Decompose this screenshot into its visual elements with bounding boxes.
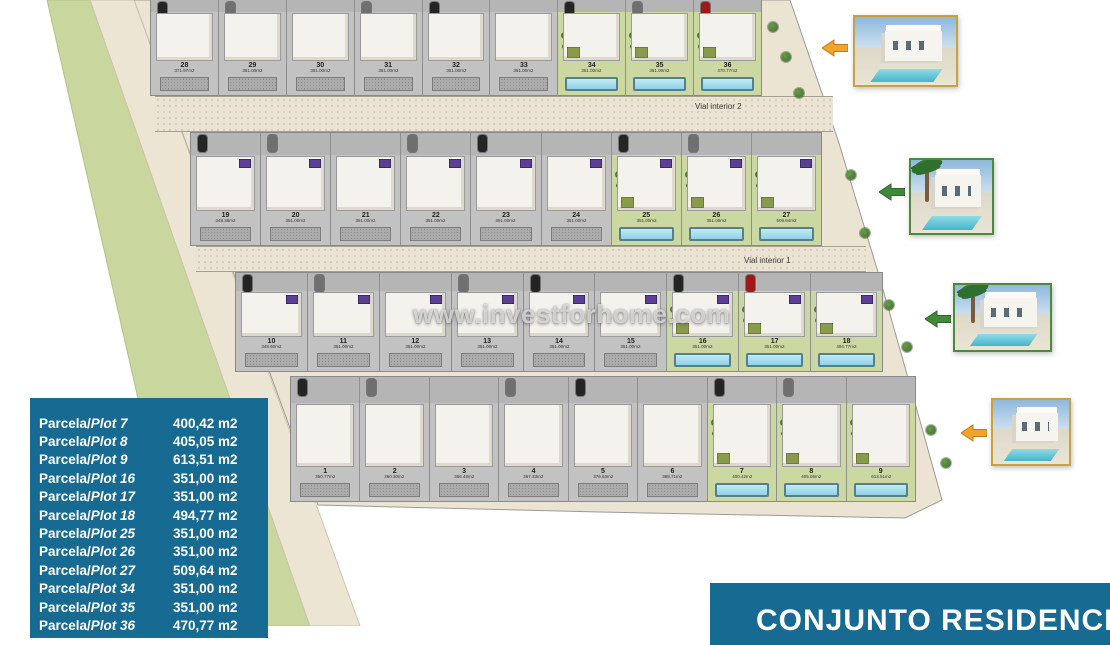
garden-patch — [635, 47, 648, 58]
plot-label: 7400.42m2 — [708, 468, 776, 482]
plot-area-label: 613.51m2 — [850, 475, 912, 480]
house-footprint — [296, 404, 354, 467]
plot-table-label: Parcela/Plot 27 — [39, 563, 173, 578]
driveway — [626, 0, 693, 12]
plot-label: 19348.38m2 — [191, 212, 260, 226]
photo-pool — [871, 69, 943, 82]
swimming-pool — [674, 353, 731, 367]
plot-7: 7400.42m2 — [708, 377, 777, 501]
plot-label: 26351.00m2 — [682, 212, 751, 226]
house-footprint — [241, 292, 302, 337]
terrace — [480, 227, 531, 241]
development-banner: CONJUNTO RESIDENCIAL — [710, 583, 1110, 645]
solar-panel-icon — [449, 159, 461, 168]
plot-4: 4367.33m2 — [499, 377, 568, 501]
solar-panel-icon — [239, 159, 251, 168]
plot-table-area: 405,05 m2 — [173, 434, 238, 449]
solar-panel-icon — [861, 295, 873, 304]
house-footprint — [744, 292, 805, 337]
garden-patch — [691, 197, 704, 208]
house-footprint — [547, 156, 606, 211]
plot-area-label: 405.05m2 — [780, 475, 842, 480]
house-footprint — [224, 13, 281, 61]
plot-area-label: 351.00m2 — [335, 219, 397, 224]
photo-pool — [1004, 449, 1060, 461]
plot-area-label: 351.00m2 — [527, 345, 591, 350]
swimming-pool — [746, 353, 803, 367]
driveway — [667, 273, 738, 291]
plot-table-area: 613,51 m2 — [173, 452, 238, 467]
driveway — [708, 377, 776, 403]
driveway — [401, 133, 470, 155]
plot-30: 30351.00m2 — [287, 0, 355, 95]
plot-table-label: Parcela/Plot 25 — [39, 526, 173, 541]
car-icon — [198, 135, 207, 152]
plot-26: 26351.00m2 — [682, 133, 752, 245]
garden-patch — [567, 47, 580, 58]
car-icon — [715, 379, 724, 396]
arrow-left-icon — [925, 310, 951, 328]
swimming-pool — [715, 483, 769, 497]
driveway — [752, 133, 821, 155]
terrace — [296, 77, 345, 91]
house-footprint — [156, 13, 213, 61]
driveway — [595, 273, 666, 291]
plot-label: 35351.00m2 — [626, 62, 693, 76]
car-icon — [459, 275, 468, 292]
plot-area-label: 351.00m2 — [311, 345, 375, 350]
house-footprint — [476, 156, 535, 211]
driveway — [452, 273, 523, 291]
plot-area-label: 376.63m2 — [572, 475, 634, 480]
car-icon — [674, 275, 683, 292]
plot-size-table: Parcela/Plot 7400,42 m2Parcela/Plot 8405… — [30, 398, 268, 638]
plot-29: 29351.00m2 — [219, 0, 287, 95]
plot-table-area: 351,00 m2 — [173, 600, 238, 615]
garden-patch — [748, 323, 761, 334]
plot-area-label: 388.71m2 — [642, 475, 704, 480]
tree-icon — [794, 88, 804, 98]
arrow-left-icon — [879, 183, 905, 201]
plot-table-label: Parcela/Plot 8 — [39, 434, 173, 449]
plot-23: 23351.00m2 — [471, 133, 541, 245]
car-icon — [531, 275, 540, 292]
terrace — [533, 353, 586, 367]
plot-area-label: 356.48m2 — [433, 475, 495, 480]
palm-tree-icon — [925, 170, 929, 202]
tree-icon — [846, 170, 856, 180]
plot-21: 21351.00m2 — [331, 133, 401, 245]
driveway — [308, 273, 379, 291]
plot-area-label: 351.00m2 — [265, 219, 327, 224]
photo-villa — [885, 31, 942, 61]
driveway — [558, 0, 625, 12]
driveway — [542, 133, 611, 155]
house-footprint — [365, 404, 423, 467]
car-icon — [298, 379, 307, 396]
plot-table-area: 351,00 m2 — [173, 489, 238, 504]
house-footprint — [313, 292, 374, 337]
plot-label: 5376.63m2 — [569, 468, 637, 482]
plot-row-28-36: 28371.97m229351.00m230351.00m231351.00m2… — [150, 0, 762, 96]
villa-photo-4 — [991, 398, 1071, 466]
house-footprint — [406, 156, 465, 211]
plot-area-label: 350.77m2 — [294, 475, 356, 480]
tree-icon — [926, 425, 936, 435]
house-footprint — [699, 13, 756, 61]
plot-table-label: Parcela/Plot 36 — [39, 618, 173, 633]
house-footprint — [495, 13, 552, 61]
plot-table-row: Parcela/Plot 7400,42 m2 — [39, 414, 268, 432]
villa-photo-1 — [853, 15, 958, 87]
plot-table-row: Parcela/Plot 25351,00 m2 — [39, 524, 268, 542]
terrace — [461, 353, 514, 367]
solar-panel-icon — [520, 159, 532, 168]
plot-area-label: 351.00m2 — [358, 69, 418, 74]
plot-label: 32351.00m2 — [423, 62, 490, 76]
house-footprint — [852, 404, 910, 467]
photo-villa — [984, 298, 1037, 327]
plot-area-label: 494.77m2 — [815, 345, 879, 350]
plot-label: 4367.33m2 — [499, 468, 567, 482]
house-footprint — [360, 13, 417, 61]
plot-table-area: 351,00 m2 — [173, 471, 238, 486]
plot-20: 20351.00m2 — [261, 133, 331, 245]
house-footprint — [687, 156, 746, 211]
road-vial-interior-2: Vial interior 2 — [155, 96, 833, 132]
terrace — [317, 353, 370, 367]
plot-area-label: 351.00m2 — [671, 345, 735, 350]
house-footprint — [428, 13, 485, 61]
plot-table-label: Parcela/Plot 17 — [39, 489, 173, 504]
car-icon — [619, 135, 628, 152]
driveway — [811, 273, 882, 291]
plot-area-label: 351.00m2 — [426, 69, 486, 74]
terrace — [389, 353, 442, 367]
plot-area-label: 509.64m2 — [755, 219, 817, 224]
plot-area-label: 348.60m2 — [240, 345, 304, 350]
plot-label: 23351.00m2 — [471, 212, 540, 226]
driveway — [360, 377, 428, 403]
villa-photo-2 — [909, 158, 994, 235]
house-footprint — [643, 404, 701, 467]
house-footprint — [435, 404, 493, 467]
plot-label: 1350.77m2 — [291, 468, 359, 482]
plot-label: 21351.00m2 — [331, 212, 400, 226]
plot-label: 8405.05m2 — [777, 468, 845, 482]
terrace — [228, 77, 277, 91]
driveway — [219, 0, 286, 12]
driveway — [739, 273, 810, 291]
plot-table-row: Parcela/Plot 26351,00 m2 — [39, 543, 268, 561]
photo-pool — [970, 334, 1038, 346]
garden-patch — [761, 197, 774, 208]
solar-panel-icon — [286, 295, 298, 304]
solar-panel-icon — [590, 159, 602, 168]
plot-table-row: Parcela/Plot 27509,64 m2 — [39, 561, 268, 579]
plot-table-area: 494,77 m2 — [173, 508, 238, 523]
solar-panel-icon — [730, 159, 742, 168]
plot-area-label: 351.00m2 — [685, 219, 747, 224]
terrace — [578, 483, 628, 497]
plot-label: 29351.00m2 — [219, 62, 286, 76]
plot-label: 3356.48m2 — [430, 468, 498, 482]
house-footprint — [782, 404, 840, 467]
house-footprint — [266, 156, 325, 211]
tree-icon — [860, 228, 870, 238]
driveway — [569, 377, 637, 403]
plot-8: 8405.05m2 — [777, 377, 846, 501]
house-footprint — [757, 156, 816, 211]
terrace — [245, 353, 298, 367]
road-label: Vial interior 2 — [695, 102, 742, 111]
driveway — [236, 273, 307, 291]
house-footprint — [504, 404, 562, 467]
plot-table-row: Parcela/Plot 16351,00 m2 — [39, 469, 268, 487]
plot-36: 36470.77m2 — [694, 0, 761, 95]
plot-label: 27509.64m2 — [752, 212, 821, 226]
car-icon — [243, 275, 252, 292]
plot-table-label: Parcela/Plot 35 — [39, 600, 173, 615]
plot-table-row: Parcela/Plot 36470,77 m2 — [39, 616, 268, 634]
plot-31: 31351.00m2 — [355, 0, 423, 95]
road-vial-interior-1: Vial interior 1 — [196, 246, 866, 272]
plot-35: 35351.00m2 — [626, 0, 694, 95]
plot-6: 6388.71m2 — [638, 377, 707, 501]
garden-patch — [717, 453, 730, 464]
tree-icon — [781, 52, 791, 62]
car-icon — [784, 379, 793, 396]
car-icon — [367, 379, 376, 396]
plot-1: 1350.77m2 — [291, 377, 360, 501]
plot-table-area: 509,64 m2 — [173, 563, 238, 578]
plot-11: 11351.00m2 — [308, 273, 380, 371]
plot-9: 9613.51m2 — [847, 377, 915, 501]
car-icon — [315, 275, 324, 292]
solar-panel-icon — [800, 159, 812, 168]
plot-label: 14351.00m2 — [524, 338, 595, 352]
terrace — [300, 483, 350, 497]
car-icon — [268, 135, 277, 152]
garden-patch — [621, 197, 634, 208]
banner-title: CONJUNTO RESIDENCIAL — [756, 604, 1110, 638]
plot-24: 24351.00m2 — [542, 133, 612, 245]
swimming-pool — [565, 77, 618, 91]
driveway — [524, 273, 595, 291]
plot-table-label: Parcela/Plot 18 — [39, 508, 173, 523]
driveway — [847, 377, 915, 403]
car-icon — [408, 135, 417, 152]
plot-label: 17351.00m2 — [739, 338, 810, 352]
plot-label: 11351.00m2 — [308, 338, 379, 352]
plot-label: 12351.00m2 — [380, 338, 451, 352]
plot-table-label: Parcela/Plot 7 — [39, 416, 173, 431]
plot-label: 24351.00m2 — [542, 212, 611, 226]
plot-table-area: 351,00 m2 — [173, 581, 238, 596]
terrace — [410, 227, 461, 241]
plot-area-label: 351.00m2 — [615, 219, 677, 224]
plot-label: 18494.77m2 — [811, 338, 882, 352]
house-footprint — [713, 404, 771, 467]
plot-label: 36470.77m2 — [694, 62, 761, 76]
terrace — [160, 77, 209, 91]
driveway — [261, 133, 330, 155]
plot-area-label: 367.33m2 — [503, 475, 565, 480]
road-label: Vial interior 1 — [744, 256, 791, 265]
driveway — [291, 377, 359, 403]
plot-label: 30351.00m2 — [287, 62, 354, 76]
plot-area-label: 351.00m2 — [630, 69, 690, 74]
plot-17: 17351.00m2 — [739, 273, 811, 371]
watermark: www.investforhome.com — [413, 299, 730, 330]
plot-table-label: Parcela/Plot 16 — [39, 471, 173, 486]
plot-label: 28371.97m2 — [151, 62, 218, 76]
plot-area-label: 470.77m2 — [697, 69, 757, 74]
plot-label: 9613.51m2 — [847, 468, 915, 482]
plot-table-row: Parcela/Plot 35351,00 m2 — [39, 598, 268, 616]
house-footprint — [336, 156, 395, 211]
arrow-left-icon — [822, 39, 848, 57]
plot-area-label: 351.00m2 — [562, 69, 622, 74]
swimming-pool — [689, 227, 744, 241]
driveway — [191, 133, 260, 155]
house-footprint — [617, 156, 676, 211]
plot-area-label: 400.42m2 — [711, 475, 773, 480]
tree-icon — [902, 342, 912, 352]
plot-area-label: 351.00m2 — [405, 219, 467, 224]
plot-label: 31351.00m2 — [355, 62, 422, 76]
garden-patch — [856, 453, 869, 464]
villa-photo-3 — [953, 283, 1052, 352]
driveway — [380, 273, 451, 291]
plot-area-label: 351.00m2 — [222, 69, 282, 74]
palm-tree-icon — [971, 294, 975, 323]
plot-label: 2360.30m2 — [360, 468, 428, 482]
car-icon — [478, 135, 487, 152]
photo-villa — [935, 175, 980, 207]
driveway — [151, 0, 218, 12]
plot-area-label: 371.97m2 — [154, 69, 214, 74]
solar-panel-icon — [660, 159, 672, 168]
plot-table-area: 351,00 m2 — [173, 526, 238, 541]
plot-table-label: Parcela/Plot 26 — [39, 544, 173, 559]
plot-area-label: 351.00m2 — [545, 219, 607, 224]
garden-patch — [786, 453, 799, 464]
car-icon — [689, 135, 698, 152]
plot-28: 28371.97m2 — [151, 0, 219, 95]
terrace — [340, 227, 391, 241]
plot-table-row: Parcela/Plot 8405,05 m2 — [39, 432, 268, 450]
driveway — [423, 0, 490, 12]
terrace — [604, 353, 657, 367]
terrace — [647, 483, 697, 497]
arrow-left-icon — [961, 424, 987, 442]
plot-10: 10348.60m2 — [236, 273, 308, 371]
solar-panel-icon — [379, 159, 391, 168]
terrace — [364, 77, 413, 91]
plot-area-label: 351.00m2 — [743, 345, 807, 350]
solar-panel-icon — [789, 295, 801, 304]
swimming-pool — [701, 77, 754, 91]
plot-label: 16351.00m2 — [667, 338, 738, 352]
swimming-pool — [759, 227, 814, 241]
car-icon — [576, 379, 585, 396]
plot-18: 18494.77m2 — [811, 273, 882, 371]
plot-area-label: 351.00m2 — [383, 345, 447, 350]
driveway — [490, 0, 557, 12]
photo-villa — [1016, 413, 1059, 441]
terrace — [499, 77, 548, 91]
garden-patch — [703, 47, 716, 58]
tree-icon — [768, 22, 778, 32]
plot-table-area: 470,77 m2 — [173, 618, 238, 633]
house-footprint — [292, 13, 349, 61]
plot-table-row: Parcela/Plot 18494,77 m2 — [39, 506, 268, 524]
plot-area-label: 360.30m2 — [364, 475, 426, 480]
garden-patch — [820, 323, 833, 334]
terrace — [439, 483, 489, 497]
photo-pool — [922, 216, 982, 230]
plot-table-row: Parcela/Plot 17351,00 m2 — [39, 488, 268, 506]
plot-label: 20351.00m2 — [261, 212, 330, 226]
terrace — [508, 483, 558, 497]
plot-label: 15351.00m2 — [595, 338, 666, 352]
driveway — [612, 133, 681, 155]
plot-label: 10348.60m2 — [236, 338, 307, 352]
plot-2: 2360.30m2 — [360, 377, 429, 501]
terrace — [551, 227, 602, 241]
driveway — [682, 133, 751, 155]
plot-area-label: 351.00m2 — [455, 345, 519, 350]
driveway — [638, 377, 706, 403]
plot-area-label: 351.00m2 — [475, 219, 537, 224]
driveway — [355, 0, 422, 12]
plot-table-area: 400,42 m2 — [173, 416, 238, 431]
driveway — [287, 0, 354, 12]
plot-label: 13351.00m2 — [452, 338, 523, 352]
plot-area-label: 348.38m2 — [194, 219, 256, 224]
plot-19: 19348.38m2 — [191, 133, 261, 245]
driveway — [499, 377, 567, 403]
driveway — [331, 133, 400, 155]
plot-table-label: Parcela/Plot 9 — [39, 452, 173, 467]
swimming-pool — [784, 483, 838, 497]
plot-area-label: 351.00m2 — [494, 69, 554, 74]
plot-22: 22351.00m2 — [401, 133, 471, 245]
plot-34: 34351.00m2 — [558, 0, 626, 95]
house-footprint — [631, 13, 688, 61]
house-footprint — [196, 156, 255, 211]
plot-table-label: Parcela/Plot 34 — [39, 581, 173, 596]
house-footprint — [816, 292, 877, 337]
plot-label: 34351.00m2 — [558, 62, 625, 76]
car-icon — [746, 275, 755, 292]
plot-row-1-9: 1350.77m22360.30m23356.48m24367.33m25376… — [290, 376, 916, 502]
terrace — [270, 227, 321, 241]
solar-panel-icon — [358, 295, 370, 304]
tree-icon — [884, 300, 894, 310]
plot-label: 22351.00m2 — [401, 212, 470, 226]
driveway — [777, 377, 845, 403]
driveway — [430, 377, 498, 403]
house-footprint — [563, 13, 620, 61]
plot-5: 5376.63m2 — [569, 377, 638, 501]
plot-33: 33351.00m2 — [490, 0, 558, 95]
plot-label: 25351.00m2 — [612, 212, 681, 226]
plot-area-label: 351.00m2 — [290, 69, 350, 74]
swimming-pool — [854, 483, 908, 497]
terrace — [432, 77, 481, 91]
